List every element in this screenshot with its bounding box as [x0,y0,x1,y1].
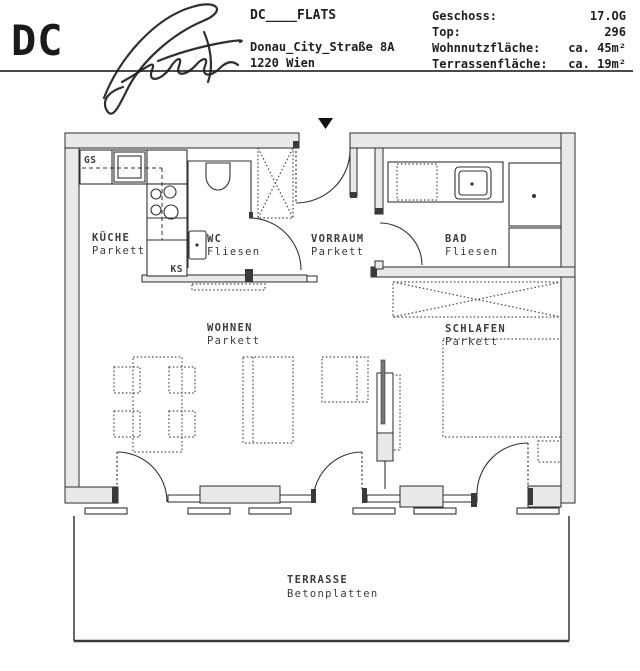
door-jamb [362,488,367,503]
terrace-edge-slat [517,508,559,514]
entry-door-swing-arc [296,150,350,203]
sill-segment [367,495,400,502]
room-material-wc: Fliesen [207,246,260,258]
terrace-doors [117,443,528,502]
wall-left [65,133,79,487]
room-material-kueche: Parkett [92,245,145,257]
wall-bad-west-lower [375,261,383,269]
bedroom-terrace-door-swing-arc [477,443,528,494]
room-name-wohnen: WOHNEN [207,322,253,334]
room-name-kueche: KÜCHE [92,230,130,244]
partition-lower [377,433,393,461]
door-jamb [471,493,477,507]
terrace-door-swing-arc [117,452,167,502]
sofa [243,357,293,443]
room-labels: KÜCHE Parkett WC Fliesen VORRAUM Parkett… [92,230,506,600]
sill-segment [168,495,200,502]
kitchen-fixtures: GS KS [80,150,187,276]
dishwasher-label: GS [84,155,96,166]
wall-bad-west [375,148,383,214]
room-material-terrasse: Betonplatten [287,588,378,600]
wall-bottom-left-corner [65,487,118,503]
wall-end-cap [307,276,317,282]
dining-table [133,357,182,452]
sill-segment [280,495,313,502]
logo-signature-flats-icon [52,0,244,126]
room-material-bad: Fliesen [445,246,498,258]
room-name-terrasse: TERRASSE [287,574,348,586]
entry-door-jamb-right [350,192,357,198]
terrace-edge-slat [414,508,456,514]
fridge-label: KS [171,264,183,275]
wall-top-left [65,133,299,148]
window-block-2 [400,486,443,507]
vorraum-wardrobe [258,148,293,218]
room-name-wc: WC [207,233,222,245]
bad-door-jamb [375,208,383,214]
wc-door-jamb [245,269,253,282]
room-material-vorraum: Parkett [311,246,364,258]
schlafen-furniture [392,282,561,462]
toilet-icon [206,163,230,190]
chair [114,367,140,393]
wall-schlafen-north [371,267,575,277]
room-material-wohnen: Parkett [207,335,260,347]
door-jamb [112,487,118,503]
sink-drain-dot [470,182,473,185]
sideboard [192,284,265,290]
terrace-edge-slat [249,508,291,514]
terrace-edge-slat [85,508,127,514]
terrace-edge-slat [188,508,230,514]
armchair [322,357,368,402]
tv-panel [381,360,385,424]
entrance [296,118,350,203]
room-material-schlafen: Parkett [445,336,498,348]
door-jamb [528,488,533,505]
bed [443,339,561,437]
wc-door-swing-arc [249,218,301,270]
room-name-schlafen: SCHLAFEN [445,323,506,335]
wall-top-right [350,133,575,148]
basin-drain-dot [195,243,198,246]
window-block-1 [200,486,280,503]
bad-door-swing-arc [380,223,422,265]
wc-door-jamb-top [249,212,253,218]
nightstand [538,441,561,462]
terrace-edge-slat [353,508,395,514]
room-name-bad: BAD [445,233,468,245]
entrance-arrow-icon [318,118,333,129]
shower-drain-dot [532,194,536,198]
wohnen-furniture [114,284,368,452]
entry-door-jamb-left [293,141,299,148]
wall-fin-entry [350,148,357,196]
wall-right [561,133,575,503]
chair [114,411,140,437]
partition-tv-wall [377,360,393,489]
floorplan-page: { "header": { "logo_text": "DC", "logo_s… [0,0,640,671]
bath-cabinet [509,228,561,267]
room-name-vorraum: VORRAUM [311,233,364,245]
terrace-door-swing-arc [313,452,362,502]
